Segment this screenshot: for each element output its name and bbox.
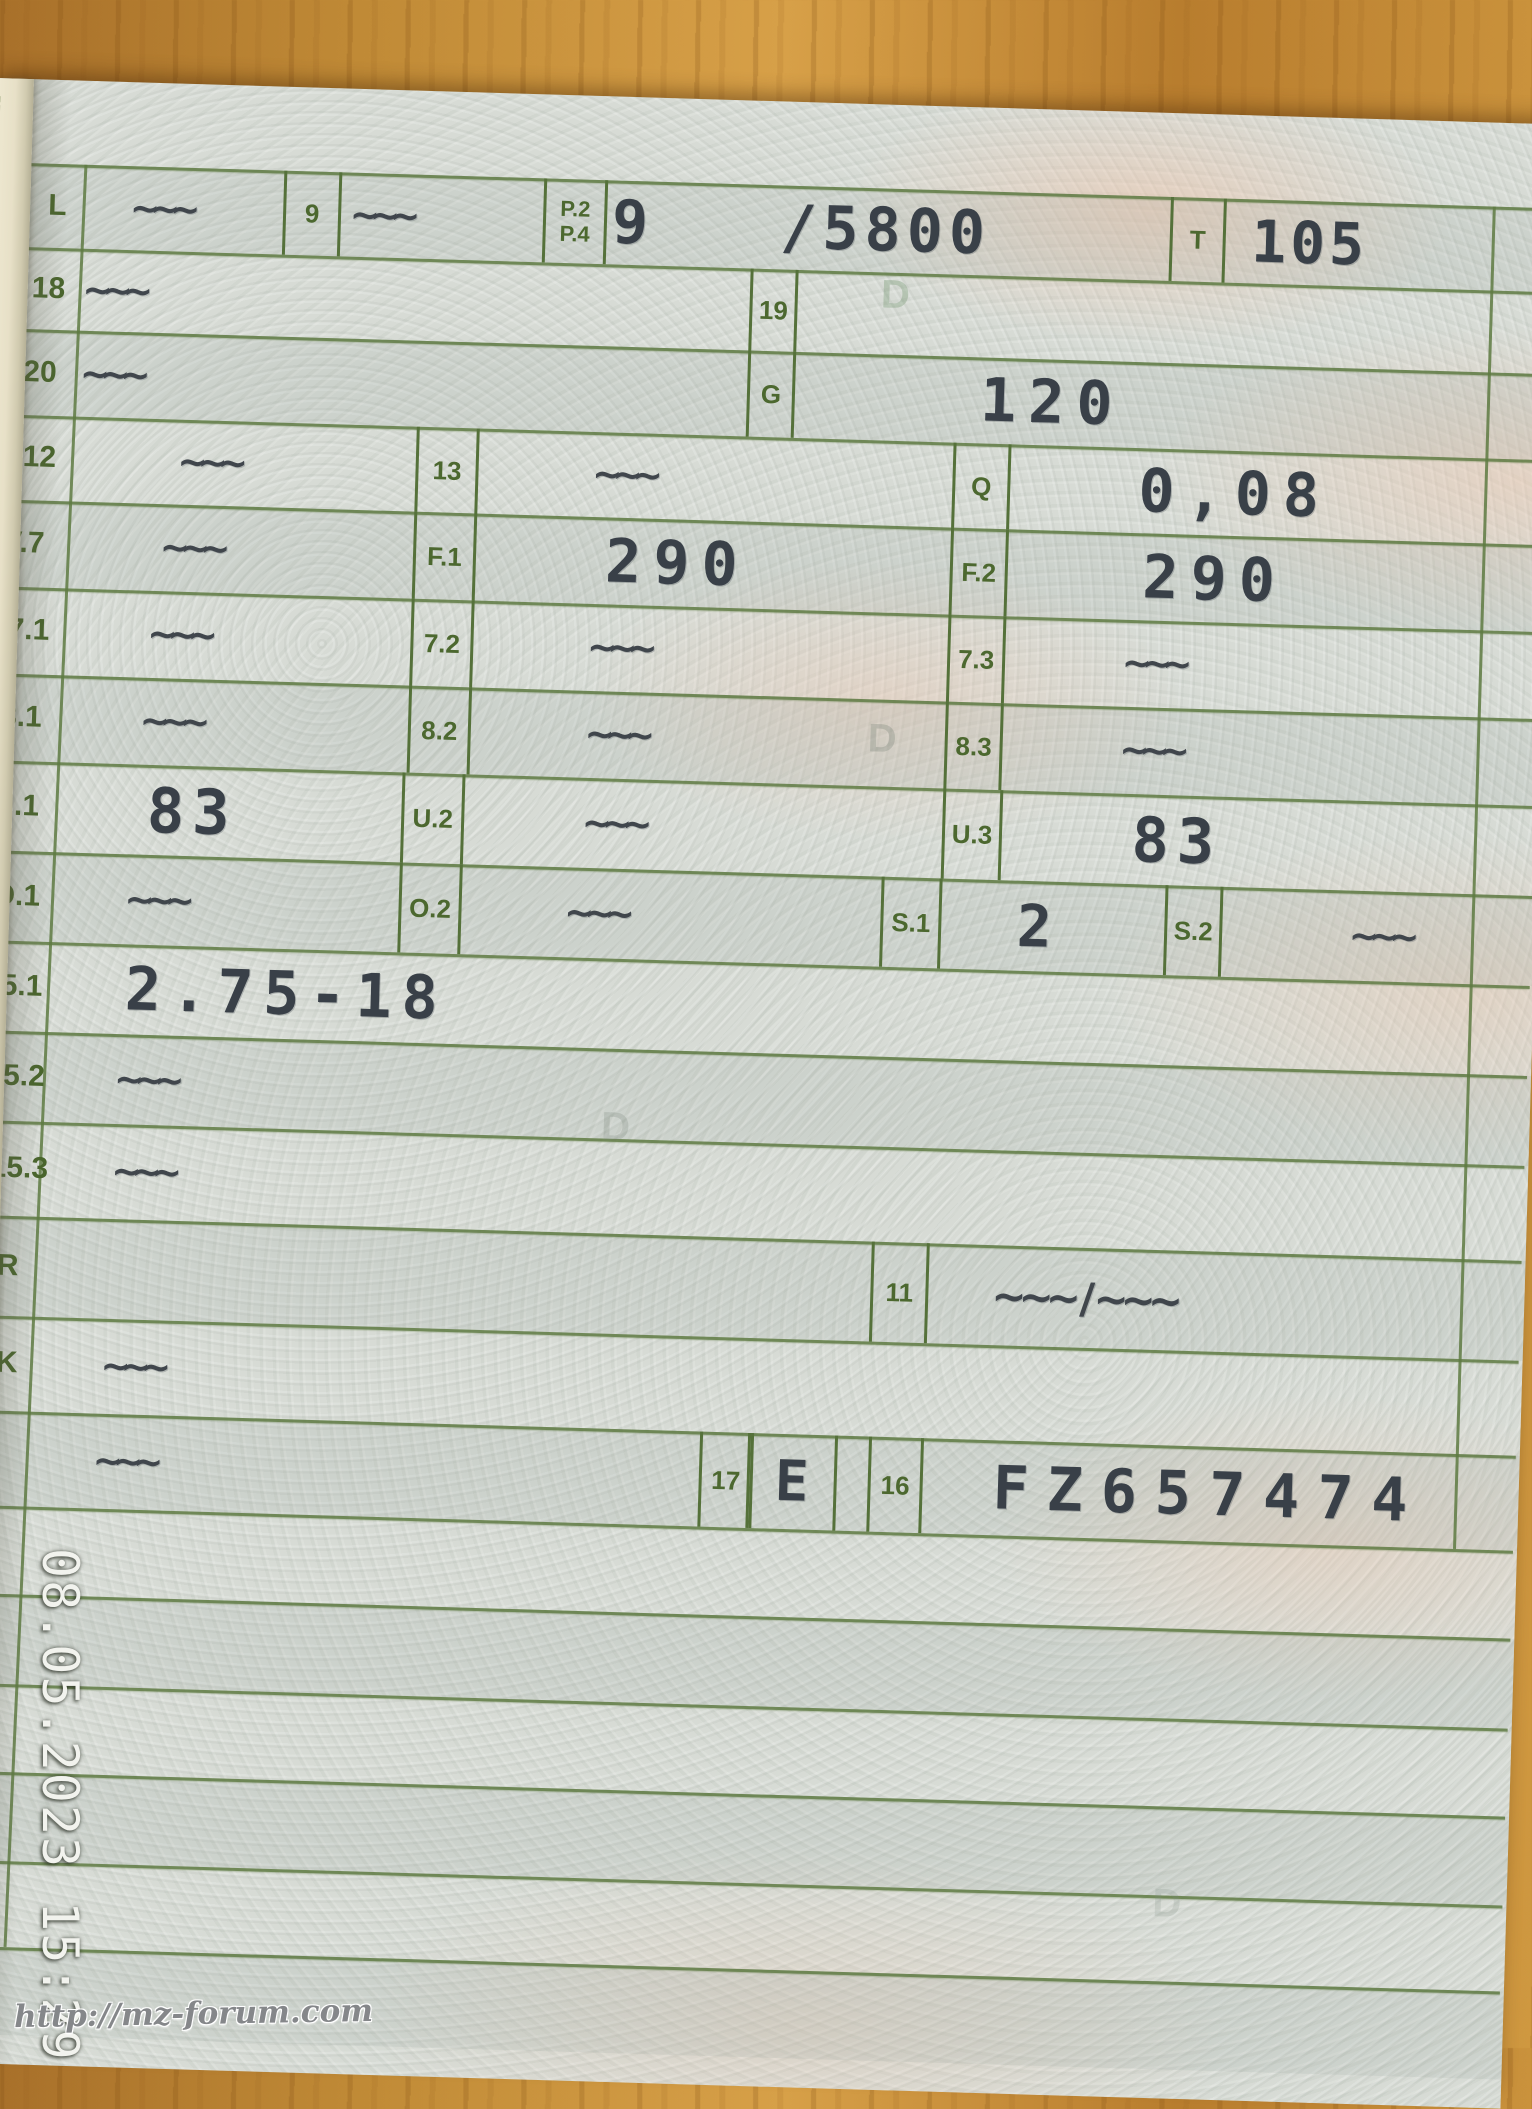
field-box-Q: Q xyxy=(951,443,1011,530)
field-box-11: 11 xyxy=(869,1242,930,1344)
field-P2-P4-value: 9 /5800 xyxy=(611,180,1053,277)
field-20-value: ~~~ xyxy=(69,330,152,418)
field-O1-value: ~~~ xyxy=(113,854,196,946)
field-F1-value: 290 xyxy=(584,517,771,609)
field-13-value: ~~~ xyxy=(581,432,663,519)
forum-watermark: http://mz-forum.com xyxy=(14,1993,374,2035)
guilloche-d-mark: D xyxy=(600,1104,630,1150)
registration-document-page: D D D D L ~~~ 9 ~~~ P.2P.4 9 /5800 T 105… xyxy=(0,78,1532,2109)
field-box-72: 7.2 xyxy=(409,599,475,688)
field-151-value: 2.75-18 xyxy=(124,944,546,1046)
field-9-value: ~~~ xyxy=(344,172,416,258)
field-U3-value: 83 xyxy=(1116,794,1239,888)
guilloche-d-mark: D xyxy=(880,272,910,318)
field-box-83: 8.3 xyxy=(943,702,1004,791)
field-153-value: ~~~ xyxy=(100,1124,183,1221)
field-S2-value: ~~~ xyxy=(1333,890,1426,983)
field-box-19: 19 xyxy=(748,269,798,352)
field-152-value: ~~~ xyxy=(103,1034,186,1126)
field-81-value: ~~~ xyxy=(129,677,212,766)
field-box-73: 7.3 xyxy=(946,615,1007,704)
field-box-P2-label: P.2 xyxy=(560,196,591,222)
field-73-value: ~~~ xyxy=(1106,619,1199,709)
field-72-value: ~~~ xyxy=(576,604,659,693)
field-box-T: T xyxy=(1168,197,1226,283)
guilloche-d-mark: D xyxy=(867,716,897,762)
field-U1-value: 83 xyxy=(131,764,254,858)
field-box-16: 16 xyxy=(866,1437,924,1534)
field-K-value: ~~~ xyxy=(89,1318,172,1415)
field-V7-value: ~~~ xyxy=(149,504,232,593)
field-F2-value: 290 xyxy=(1123,533,1306,625)
field-S1-value: 2 xyxy=(993,880,1076,972)
camera-timestamp: 08.05.2023 15:29 xyxy=(32,1548,88,2062)
field-box-P2-P4: P.2P.4 xyxy=(542,178,608,264)
field-12-value: ~~~ xyxy=(166,419,248,506)
field-box-F2: F.2 xyxy=(949,528,1010,617)
field-box-U2: U.2 xyxy=(400,772,466,864)
field-box-O2: O.2 xyxy=(397,862,463,954)
field-box-13: 13 xyxy=(414,427,479,514)
field-G-value: 120 xyxy=(969,357,1136,448)
field-18-value: ~~~ xyxy=(72,248,154,332)
field-box-82: 8.2 xyxy=(407,686,473,775)
field-box-S1: S.1 xyxy=(879,877,943,969)
field-17-value: E xyxy=(745,1433,838,1531)
field-71-value: ~~~ xyxy=(136,591,219,680)
field-box-9: 9 xyxy=(282,171,342,257)
field-box-F1: F.1 xyxy=(412,512,478,601)
field-box-S2: S.2 xyxy=(1163,885,1224,977)
field-T-value: 105 xyxy=(1228,199,1390,288)
field-83-value: ~~~ xyxy=(1103,706,1196,796)
guilloche-d-mark: D xyxy=(1152,1881,1182,1927)
field-row16-left-value: ~~~ xyxy=(82,1413,165,1510)
field-82-value: ~~~ xyxy=(574,691,657,780)
field-U2-value: ~~~ xyxy=(571,777,654,869)
field-Q-value: 0,08 xyxy=(1116,448,1353,540)
field-O2-value: ~~~ xyxy=(553,867,636,959)
field-16-value: FZ657474 xyxy=(991,1440,1464,1549)
field-L-value: ~~~ xyxy=(114,166,206,253)
field-box-U3: U.3 xyxy=(941,788,1004,880)
field-box-P4-label: P.4 xyxy=(559,221,590,247)
field-box-G: G xyxy=(746,350,797,437)
field-11-value: ~~~ / ~~~ xyxy=(982,1245,1185,1351)
